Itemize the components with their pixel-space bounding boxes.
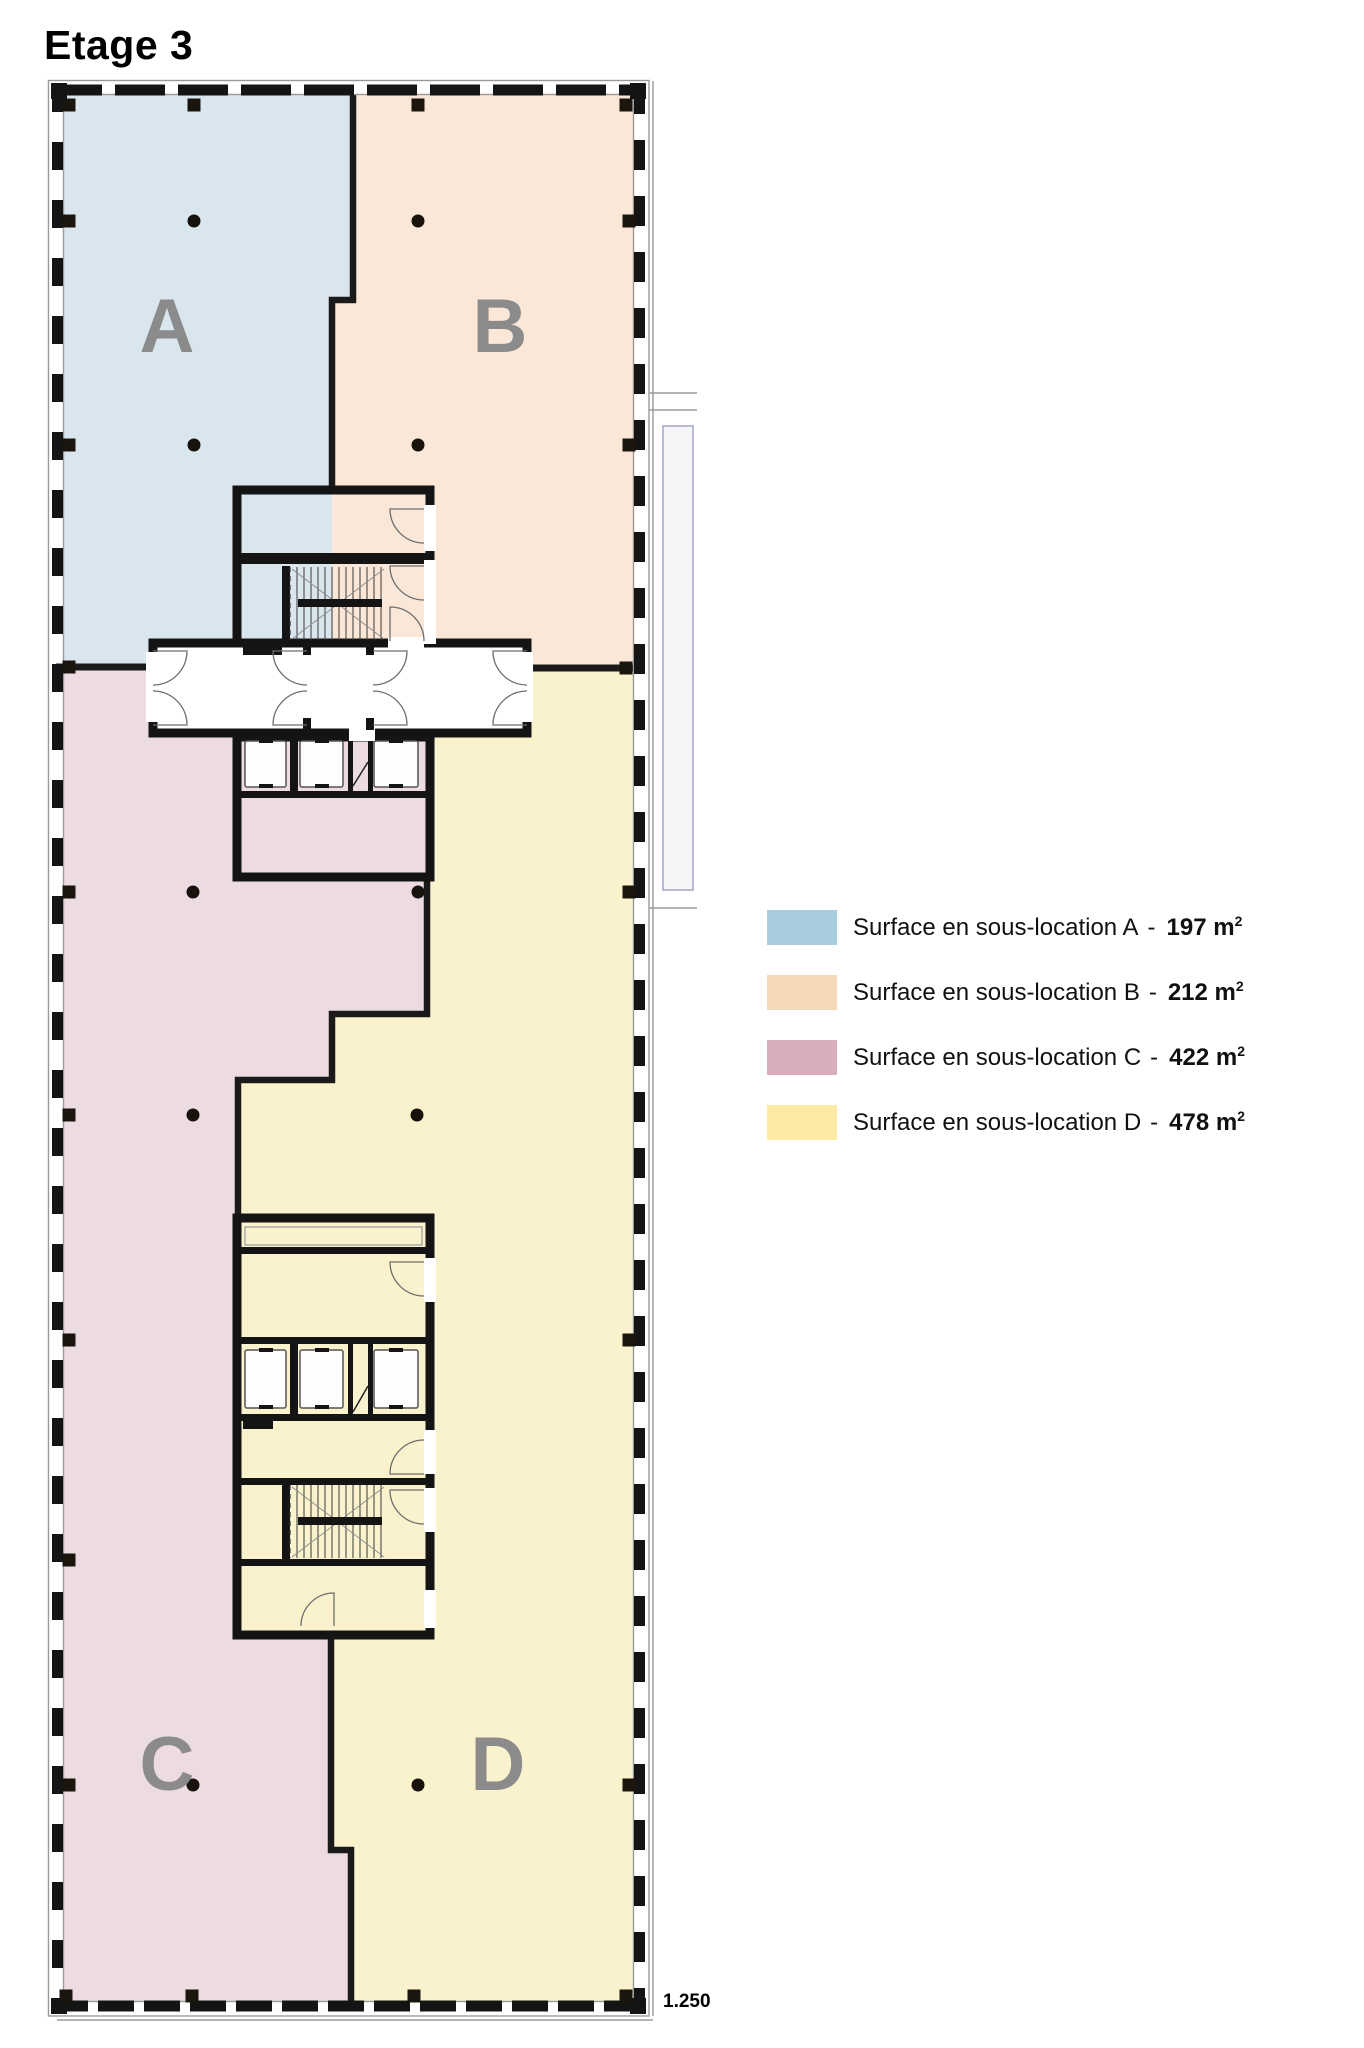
legend-text-d: Surface en sous-location D - 478 m2 [853,1109,1245,1137]
column-marker-round [412,439,425,452]
legend-label: Surface en sous-location C [853,1044,1141,1072]
legend-text-c: Surface en sous-location C - 422 m2 [853,1044,1245,1072]
column-marker-round [412,886,425,899]
legend-label: Surface en sous-location B [853,979,1140,1007]
zone-c-label: C [140,1722,195,1807]
legend-area-value: 212 [1168,979,1208,1006]
column-marker-square [60,1990,73,2003]
floor-plan: A B C D [0,0,760,2048]
column-marker-square [623,1779,636,1792]
column-marker-round [412,215,425,228]
column-marker-square [63,1334,76,1347]
legend-swatch-a [767,910,837,945]
column-marker-round [187,886,200,899]
column-marker-square [408,1990,421,2003]
legend-area-value: 422 [1169,1044,1209,1071]
legend-area-value: 197 [1167,914,1207,941]
column-marker-square [188,99,201,112]
legend-row-d: Surface en sous-location D - 478 m2 [767,1105,1245,1140]
zone-b-area [332,95,634,668]
column-marker-round [187,1109,200,1122]
column-marker-round [412,1779,425,1792]
legend-swatch-b [767,975,837,1010]
column-marker-square [63,215,76,228]
column-marker-square [63,1109,76,1122]
column-marker-square [63,886,76,899]
legend: Surface en sous-location A - 197 m2 Surf… [767,910,1245,1170]
rental-zones [64,95,634,2001]
column-marker-square [620,99,633,112]
column-marker-square [63,1779,76,1792]
column-marker-square [63,1554,76,1567]
upper-elevator-cars [245,741,418,787]
central-corridor [153,643,527,733]
column-marker-square [620,662,633,675]
zone-d-label: D [471,1722,526,1807]
column-marker-square [623,215,636,228]
column-marker-square [63,99,76,112]
column-marker-square [623,1334,636,1347]
column-marker-square [63,439,76,452]
legend-row-a: Surface en sous-location A - 197 m2 [767,910,1245,945]
stair-landing-rail [298,599,382,607]
legend-swatch-c [767,1040,837,1075]
legend-label: Surface en sous-location D [853,1109,1141,1137]
legend-area-value: 478 [1169,1109,1209,1136]
scale-label: 1.250 [663,1991,711,2013]
column-marker-square [623,439,636,452]
column-marker-round [188,215,201,228]
lower-elevator-cars [245,1350,418,1408]
column-marker-square [63,661,76,674]
column-marker-square [412,99,425,112]
legend-label: Surface en sous-location A [853,914,1139,942]
stair-landing-rail [298,1517,382,1525]
legend-swatch-d [767,1105,837,1140]
legend-text-b: Surface en sous-location B - 212 m2 [853,979,1244,1007]
zone-a-label: A [140,284,195,369]
page-title: Etage 3 [44,22,193,69]
floor-plan-page: Etage 3 [0,0,1364,2048]
legend-row-c: Surface en sous-location C - 422 m2 [767,1040,1245,1075]
legend-row-b: Surface en sous-location B - 212 m2 [767,975,1245,1010]
zone-b-label: B [473,284,528,369]
column-marker-square [620,1990,633,2003]
balcony [649,393,697,908]
column-marker-round [188,439,201,452]
column-marker-square [186,1990,199,2003]
column-marker-round [411,1109,424,1122]
column-marker-square [623,886,636,899]
legend-text-a: Surface en sous-location A - 197 m2 [853,914,1242,942]
zone-a-area [64,95,353,667]
balcony-deck [663,426,693,890]
